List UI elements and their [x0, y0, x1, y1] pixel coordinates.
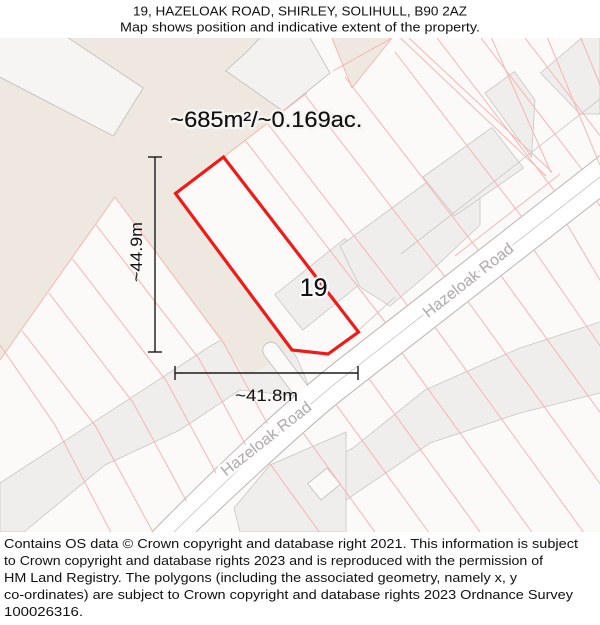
svg-text:19, HAZELOAK ROAD, SHIRLEY, SO: 19, HAZELOAK ROAD, SHIRLEY, SOLIHULL, B9… — [133, 4, 467, 19]
svg-text:~685m²/~0.169ac.: ~685m²/~0.169ac. — [170, 107, 362, 132]
svg-text:~44.9m: ~44.9m — [128, 222, 146, 282]
svg-text:co-ordinates) are subject to C: co-ordinates) are subject to Crown copyr… — [4, 587, 574, 602]
svg-text:19: 19 — [300, 274, 328, 302]
svg-text:~41.8m: ~41.8m — [235, 387, 298, 405]
svg-text:HM Land Registry. The polygons: HM Land Registry. The polygons (includin… — [4, 570, 518, 585]
svg-text:to Crown copyright and databas: to Crown copyright and database rights 2… — [4, 553, 543, 568]
svg-text:Contains OS data © Crown copyr: Contains OS data © Crown copyright and d… — [4, 536, 578, 551]
svg-text:Map shows position and indicat: Map shows position and indicative extent… — [120, 20, 480, 35]
svg-text:100026316.: 100026316. — [4, 604, 83, 619]
